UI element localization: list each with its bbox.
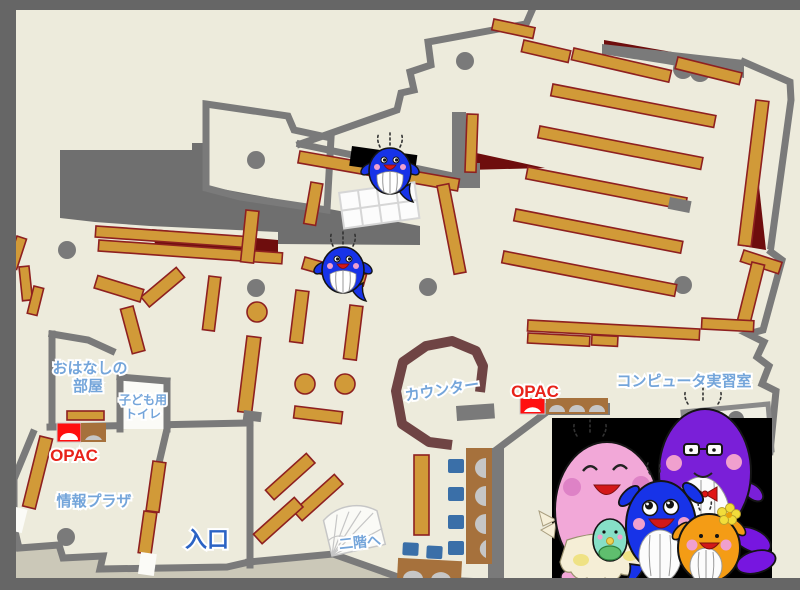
- gray-desk: [456, 403, 495, 421]
- round-table: [247, 302, 267, 322]
- bookshelf: [414, 455, 429, 535]
- mascot-family-panel: [539, 388, 778, 590]
- bookshelf: [527, 333, 589, 346]
- label-opac-right: OPAC: [511, 382, 559, 401]
- opac-desk-left: [57, 423, 106, 442]
- label-entrance: 入口: [185, 527, 229, 552]
- label-storytelling-room-line2: 部屋: [73, 377, 103, 395]
- bookshelf: [591, 335, 617, 346]
- doorway-gap: [138, 552, 157, 576]
- round-table: [335, 374, 355, 394]
- chair: [448, 487, 464, 501]
- library-floor-map: おはなしの 部屋 子ども用 トイレ OPAC 情報プラザ 入口 二階へ カウンタ…: [0, 0, 800, 590]
- round-table: [295, 374, 315, 394]
- bookshelf: [67, 411, 104, 420]
- chair: [426, 545, 443, 559]
- baby-teal-whale-icon: [593, 519, 627, 561]
- bookshelf: [701, 318, 754, 332]
- chair: [402, 542, 419, 556]
- label-kids-toilet-line1: 子ども用: [119, 393, 167, 407]
- label-info-plaza: 情報プラザ: [56, 492, 131, 510]
- label-computer-room: コンピュータ実習室: [616, 372, 751, 390]
- bookshelf: [465, 114, 478, 172]
- chair: [448, 515, 464, 529]
- chair: [448, 541, 464, 555]
- label-opac-left: OPAC: [50, 446, 98, 465]
- label-kids-toilet-line2: トイレ: [125, 407, 161, 421]
- label-storytelling-room-line1: おはなしの: [52, 360, 127, 377]
- chair: [448, 459, 464, 473]
